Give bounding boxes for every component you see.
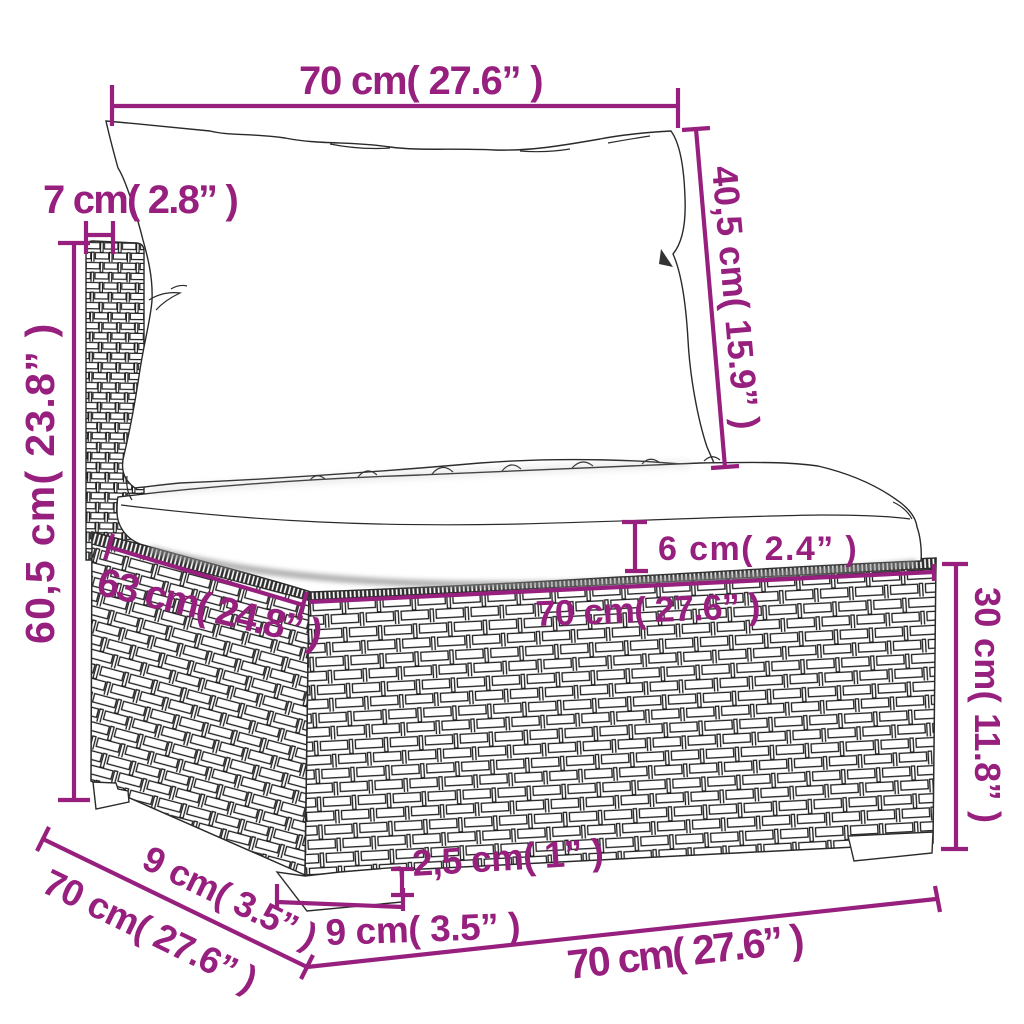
svg-text:30 cm( 11.8” ): 30 cm( 11.8” ) <box>967 587 1008 823</box>
svg-text:9 cm( 3.5” ): 9 cm( 3.5” ) <box>325 905 521 953</box>
svg-text:70 cm( 27.6” ): 70 cm( 27.6” ) <box>299 59 542 103</box>
svg-text:40,5 cm( 15.9” ): 40,5 cm( 15.9” ) <box>704 164 768 431</box>
svg-text:70 cm( 27.6” ): 70 cm( 27.6” ) <box>535 585 761 634</box>
svg-text:60,5 cm( 23.8” ): 60,5 cm( 23.8” ) <box>17 322 63 644</box>
svg-text:7 cm( 2.8” ): 7 cm( 2.8” ) <box>43 178 238 222</box>
svg-text:6 cm( 2.4” ): 6 cm( 2.4” ) <box>658 530 858 568</box>
